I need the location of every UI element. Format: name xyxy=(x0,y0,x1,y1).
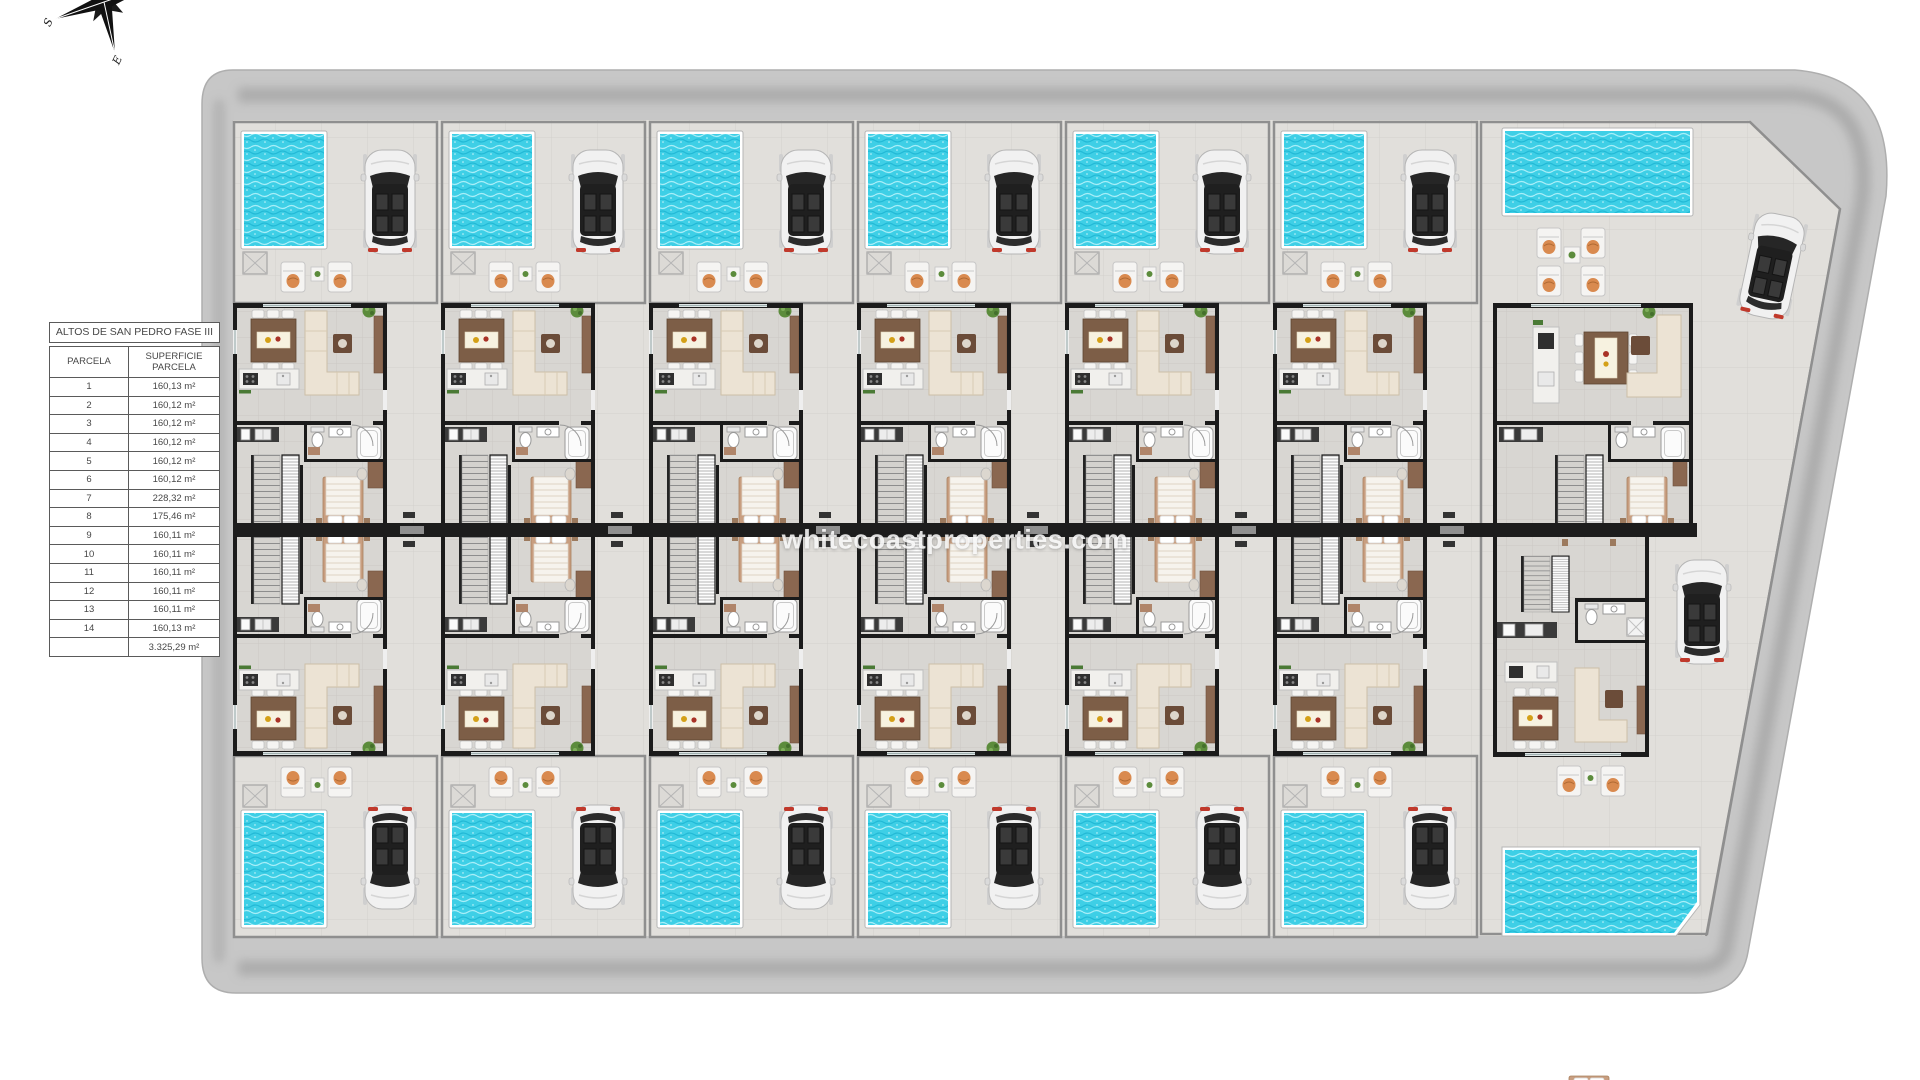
table-row: 3160,12 m² xyxy=(50,415,220,434)
table-row: 13160,11 m² xyxy=(50,601,220,620)
nightstand xyxy=(1562,539,1568,546)
compass-star xyxy=(55,0,153,53)
table-row: 6160,12 m² xyxy=(50,470,220,489)
table-row: 14160,13 m² xyxy=(50,619,220,638)
watermark: whitecoastproperties.com xyxy=(782,525,1129,556)
compass-label-south: S xyxy=(41,16,56,29)
table-row: 1160,13 m² xyxy=(50,378,220,397)
table-row: 8175,46 m² xyxy=(50,508,220,527)
kitchen xyxy=(1533,320,1559,403)
table-row: 12160,11 m² xyxy=(50,582,220,601)
table-row: 10160,11 m² xyxy=(50,545,220,564)
shower xyxy=(1627,618,1645,636)
table-row: 9160,11 m² xyxy=(50,526,220,545)
table-row: 4160,12 m² xyxy=(50,433,220,452)
pool xyxy=(1502,128,1693,216)
col-header-superficie: SUPERFICIE PARCELA xyxy=(129,347,220,378)
table-row: 5160,12 m² xyxy=(50,452,220,471)
compass-rose: S E xyxy=(18,0,188,75)
bathroom xyxy=(1611,426,1687,460)
nightstand xyxy=(1610,539,1616,546)
sideboard xyxy=(1637,686,1646,734)
table-row: 2160,12 m² xyxy=(50,396,220,415)
kitchen xyxy=(1505,662,1557,682)
utility-units xyxy=(1499,427,1543,442)
desk xyxy=(1673,460,1687,486)
table-title: ALTOS DE SAN PEDRO FASE III xyxy=(49,322,220,343)
coffee-table xyxy=(1605,690,1623,708)
utility-units xyxy=(1497,622,1557,638)
coffee-table xyxy=(1631,336,1650,355)
pool xyxy=(1502,847,1700,936)
table-header-row: PARCELA SUPERFICIE PARCELA xyxy=(50,347,220,378)
bathroom xyxy=(1579,602,1647,640)
compass-label-east: E xyxy=(109,54,125,68)
parcela-table: ALTOS DE SAN PEDRO FASE III PARCELA SUPE… xyxy=(49,322,220,657)
parcela-data-table: PARCELA SUPERFICIE PARCELA 1160,13 m²216… xyxy=(49,346,220,657)
table-row: 7228,32 m² xyxy=(50,489,220,508)
floor-plan-page: S E ALTOS DE SAN PEDRO FASE III PARCELA … xyxy=(0,0,1920,1080)
table-total-row: 3.325,29 m² xyxy=(50,638,220,657)
table-row: 11160,11 m² xyxy=(50,563,220,582)
col-header-parcela: PARCELA xyxy=(50,347,129,378)
villa-unit xyxy=(1493,303,1693,530)
